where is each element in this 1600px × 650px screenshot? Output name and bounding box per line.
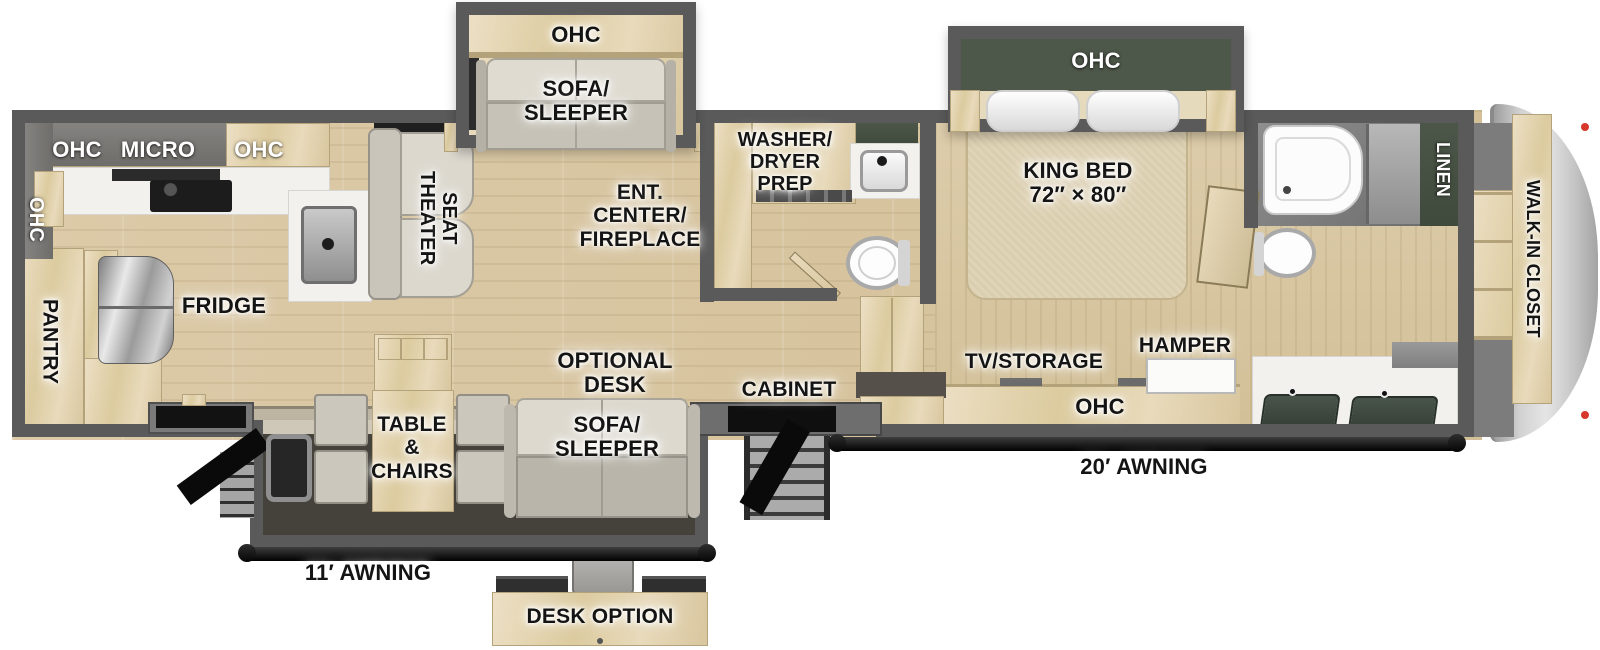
label-hamper: HAMPER — [1126, 333, 1244, 359]
marker-light-icon — [1581, 123, 1589, 131]
label-pantry: PANTRY — [20, 260, 80, 424]
patio-doorway — [156, 406, 246, 428]
label-king-bed: KING BED 72″ × 80″ — [998, 152, 1158, 214]
label-slide-ohc: OHC — [524, 21, 628, 49]
label-awning-11: 11′ AWNING — [286, 558, 450, 588]
nightstand — [950, 90, 980, 132]
entry-cabinet-top — [856, 372, 946, 398]
label-bedroom-ohc: OHC — [1044, 46, 1148, 76]
label-table-chairs: TABLE & CHAIRS — [350, 404, 474, 492]
fridge-divider — [99, 306, 173, 309]
floorplan-canvas: OHC OHC MICRO OHC PANTRY FRIDGE THEATER … — [0, 0, 1600, 650]
shower-glass — [1366, 124, 1422, 224]
awning-rail-20 — [834, 437, 1458, 451]
sofa-armrest — [504, 404, 516, 518]
deck-post — [182, 394, 206, 406]
vanity-backsplash — [1392, 342, 1458, 368]
label-ohc-rear: OHC — [18, 172, 54, 268]
hamper-box — [1146, 358, 1236, 394]
faucet-icon — [877, 156, 887, 166]
slide-wall — [250, 535, 708, 547]
nightstand — [1206, 90, 1236, 132]
label-slide-sofa: SOFA/ SLEEPER — [500, 70, 652, 132]
wardrobe-divider — [891, 298, 893, 378]
sofa-armrest — [476, 60, 486, 152]
toilet-seat-ring — [858, 246, 896, 280]
faucet-icon — [1380, 389, 1389, 398]
toilet-tank — [1254, 232, 1264, 276]
theater-seat-back — [368, 128, 402, 300]
label-ohc-cabinet: OHC — [1046, 392, 1154, 422]
label-sofa-sleeper: SOFA/ SLEEPER — [530, 406, 684, 468]
pillow — [986, 90, 1080, 132]
fridge-icon — [98, 256, 174, 364]
window — [266, 434, 312, 502]
bedroom-wall — [1244, 110, 1258, 228]
cooktop-icon — [150, 180, 232, 212]
sofa-armrest — [666, 60, 676, 152]
bath-wall — [920, 110, 936, 304]
label-ohc-top2: OHC — [228, 137, 290, 163]
label-theater-seat: THEATER SEAT — [402, 140, 474, 296]
label-ohc-top: OHC — [46, 137, 108, 163]
label-linen: LINEN — [1420, 118, 1464, 220]
hutch-panes — [378, 338, 448, 360]
label-micro: MICRO — [112, 137, 204, 163]
faucet-icon — [1288, 387, 1297, 396]
label-awning-20: 20′ AWNING — [1038, 452, 1250, 482]
label-washer-dryer: WASHER/ DRYER PREP — [712, 122, 858, 202]
awning-end-cap — [698, 544, 716, 562]
faucet-icon — [322, 238, 334, 250]
toilet-tank — [898, 240, 910, 286]
label-tv-storage: TV/STORAGE — [942, 348, 1126, 376]
marker-light-icon — [1581, 411, 1589, 419]
desk-knob — [597, 638, 603, 644]
label-walk-in-closet: WALK-IN CLOSET — [1512, 120, 1552, 398]
closet-shelves — [1470, 190, 1514, 340]
tv-mount-notch — [1118, 378, 1148, 386]
awning-end-cap — [238, 544, 256, 562]
bath-wall — [700, 288, 837, 301]
exterior-wall-top — [12, 110, 470, 123]
label-optional-desk: OPTIONAL DESK — [538, 344, 692, 402]
sofa-armrest — [688, 404, 700, 518]
pillow — [1086, 90, 1180, 132]
tv-mount-notch — [1000, 378, 1042, 386]
label-ent-center: ENT. CENTER/ FIREPLACE — [548, 170, 732, 262]
drain-icon — [1283, 186, 1291, 194]
exterior-wall-bottom — [876, 424, 1472, 437]
toilet-icon — [1258, 228, 1316, 278]
label-cabinet: CABINET — [722, 377, 856, 403]
label-fridge: FRIDGE — [168, 292, 280, 320]
bath-backsplash — [856, 121, 918, 145]
label-desk-option: DESK OPTION — [510, 602, 690, 632]
awning-end-cap — [1448, 434, 1466, 452]
awning-end-cap — [828, 434, 846, 452]
